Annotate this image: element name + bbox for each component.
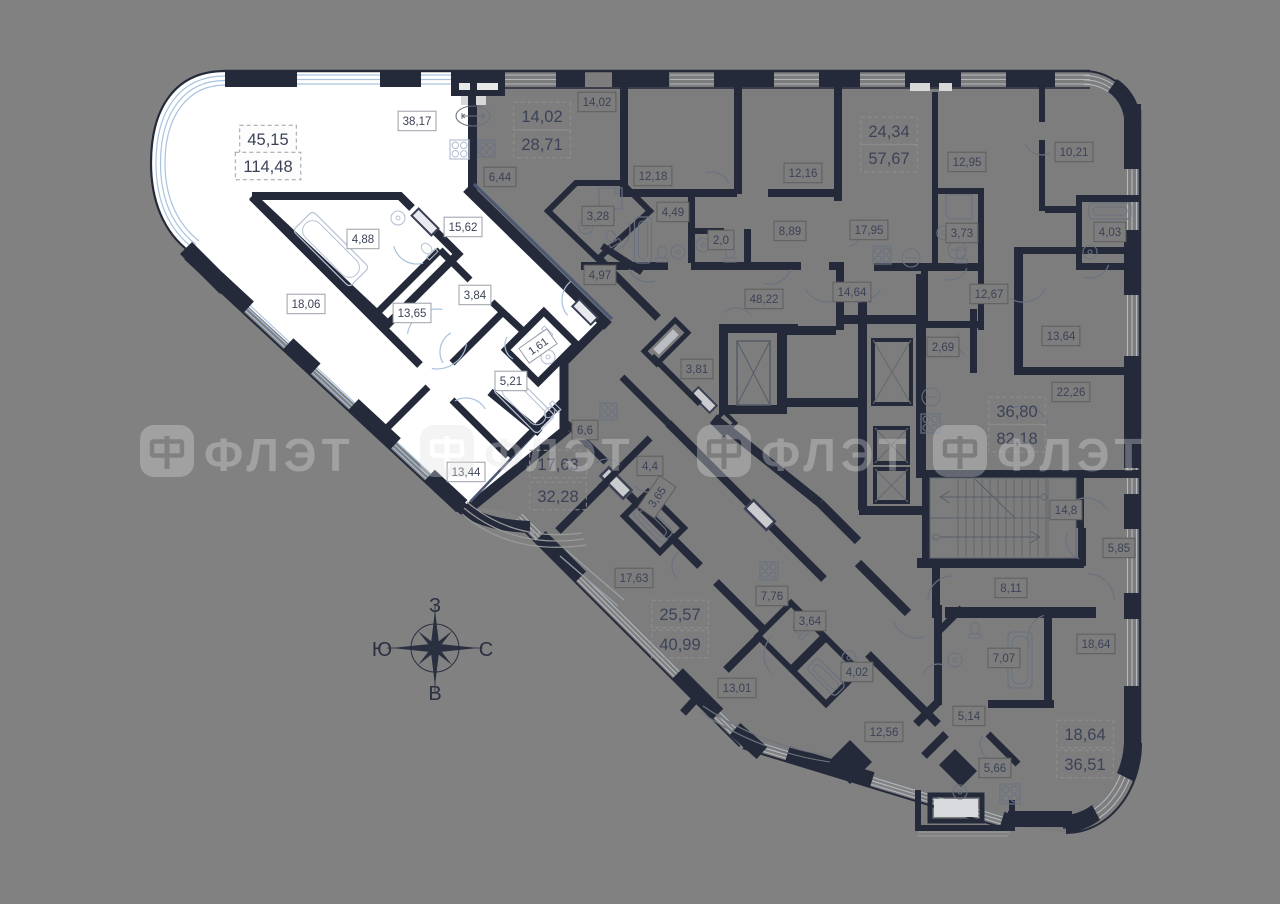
svg-text:8,11: 8,11 [1000,583,1022,595]
svg-text:18,64: 18,64 [1064,726,1105,744]
svg-text:ФЛЭТ: ФЛЭТ [204,429,355,481]
svg-text:114,48: 114,48 [243,158,292,176]
svg-text:13,64: 13,64 [1047,331,1076,343]
svg-text:5,14: 5,14 [958,711,981,723]
svg-text:3,64: 3,64 [799,616,822,628]
svg-text:7,76: 7,76 [761,591,783,603]
svg-text:4,97: 4,97 [589,270,611,282]
svg-text:В: В [428,683,441,705]
svg-text:5,21: 5,21 [500,376,522,388]
svg-text:40,99: 40,99 [659,636,700,654]
svg-text:36,80: 36,80 [996,403,1037,421]
svg-text:4,03: 4,03 [1099,227,1121,239]
svg-text:ФЛЭТ: ФЛЭТ [761,429,912,481]
svg-text:10,21: 10,21 [1060,147,1089,159]
svg-text:4,02: 4,02 [846,667,868,679]
svg-text:4,49: 4,49 [662,207,684,219]
svg-text:14,02: 14,02 [521,108,562,126]
svg-text:3,81: 3,81 [686,364,708,376]
svg-text:5,85: 5,85 [1108,543,1130,555]
svg-text:57,67: 57,67 [868,150,909,168]
svg-text:17,95: 17,95 [855,225,884,237]
svg-text:2,69: 2,69 [932,342,954,354]
svg-text:28,71: 28,71 [521,136,562,154]
svg-text:6,44: 6,44 [489,172,512,184]
svg-text:32,28: 32,28 [537,488,578,506]
svg-text:18,64: 18,64 [1082,639,1111,651]
svg-text:14,02: 14,02 [583,97,612,109]
svg-text:2,0: 2,0 [713,235,729,247]
svg-text:38,17: 38,17 [403,116,432,128]
svg-text:14,8: 14,8 [1055,505,1077,517]
svg-text:7,07: 7,07 [993,653,1015,665]
svg-text:3,28: 3,28 [587,211,609,223]
svg-text:12,18: 12,18 [639,171,668,183]
svg-text:17,63: 17,63 [620,573,649,585]
svg-text:Ю: Ю [372,639,392,661]
svg-text:22,26: 22,26 [1057,387,1086,399]
svg-text:4,88: 4,88 [352,234,374,246]
svg-text:ФЛЭТ: ФЛЭТ [997,429,1148,481]
svg-text:3,84: 3,84 [464,290,487,302]
svg-text:13,65: 13,65 [398,308,427,320]
svg-text:18,06: 18,06 [292,299,321,311]
svg-text:4,4: 4,4 [642,461,659,473]
svg-text:15,62: 15,62 [449,222,478,234]
svg-text:14,64: 14,64 [838,287,867,299]
svg-text:48,22: 48,22 [750,294,779,306]
svg-text:12,56: 12,56 [870,727,899,739]
svg-text:13,01: 13,01 [723,683,752,695]
svg-text:ФЛЭТ: ФЛЭТ [484,429,635,481]
svg-text:45,15: 45,15 [247,131,288,149]
svg-text:З: З [429,595,441,617]
svg-text:3,73: 3,73 [951,228,973,240]
svg-text:24,34: 24,34 [868,123,909,141]
svg-text:8,89: 8,89 [779,226,801,238]
svg-text:5,66: 5,66 [984,763,1006,775]
svg-text:С: С [479,639,493,661]
svg-text:12,67: 12,67 [975,289,1004,301]
svg-text:12,95: 12,95 [953,157,982,169]
svg-text:25,57: 25,57 [659,606,700,624]
svg-text:12,16: 12,16 [789,168,818,180]
svg-text:36,51: 36,51 [1064,756,1105,774]
